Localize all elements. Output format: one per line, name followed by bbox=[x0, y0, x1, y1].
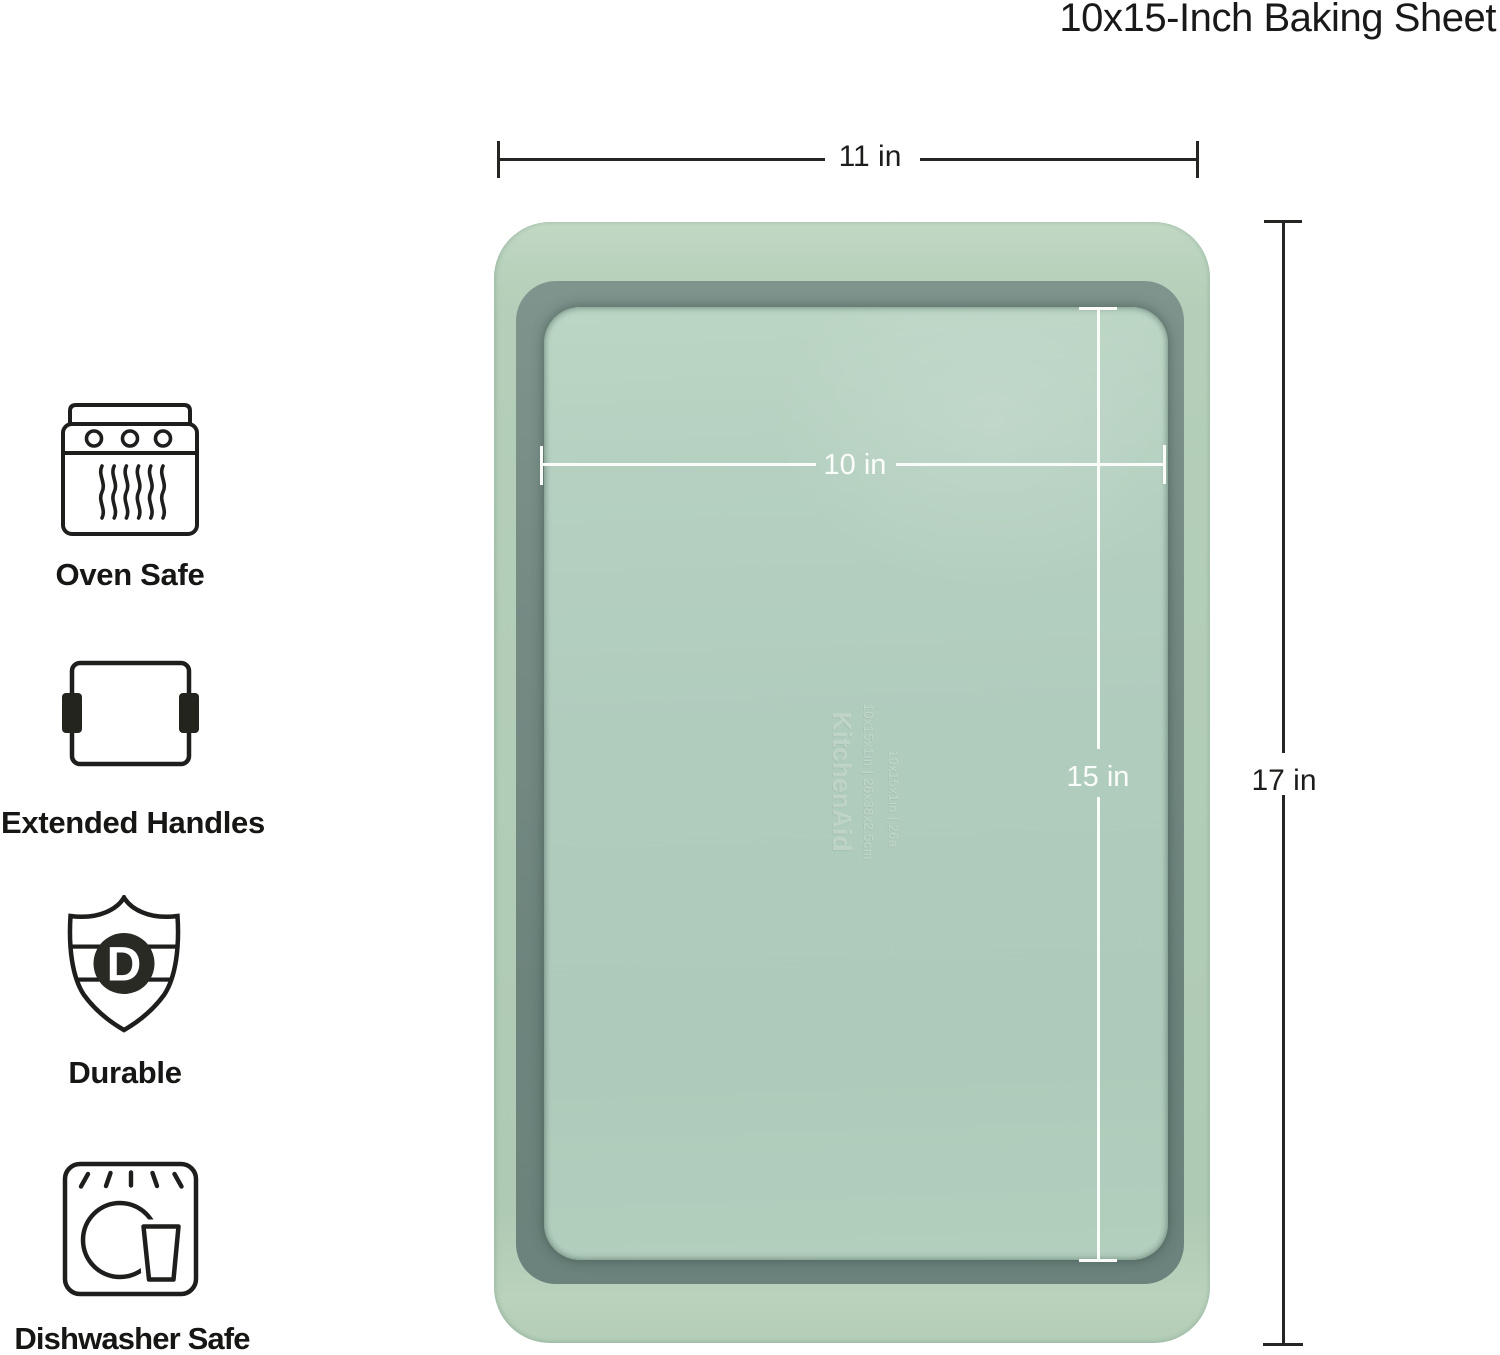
svg-text:D: D bbox=[107, 939, 142, 992]
